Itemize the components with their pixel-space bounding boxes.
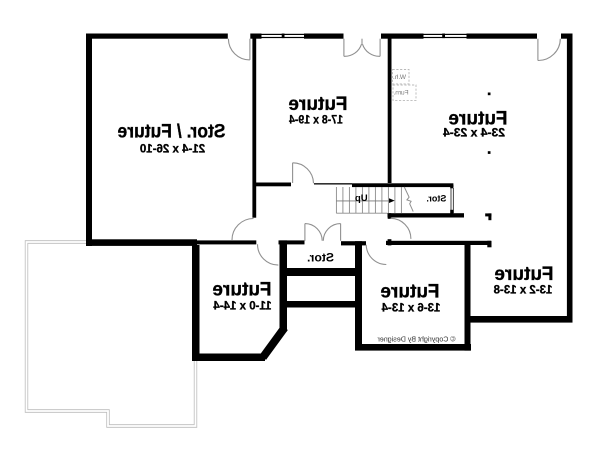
svg-text:W.h.: W.h. <box>393 74 406 81</box>
svg-text:23-4 x 23-4: 23-4 x 23-4 <box>442 127 505 139</box>
svg-text:Future: Future <box>494 264 553 285</box>
svg-text:Future: Future <box>380 282 439 303</box>
svg-text:Stor. / Future: Stor. / Future <box>118 121 226 142</box>
svg-text:Future: Future <box>288 94 347 115</box>
svg-text:17-8 x 19-4: 17-8 x 19-4 <box>288 114 343 126</box>
svg-text:13-2 x 13-8: 13-2 x 13-8 <box>493 284 552 296</box>
svg-text:© Copyright By Designer: © Copyright By Designer <box>377 336 456 344</box>
svg-text:21-4 x 26-10: 21-4 x 26-10 <box>140 144 205 156</box>
svg-text:Stor.: Stor. <box>426 194 446 204</box>
svg-text:Future: Future <box>212 280 271 301</box>
svg-text:Up: Up <box>355 193 368 204</box>
svg-text:13-6 x 13-4: 13-6 x 13-4 <box>381 302 440 314</box>
svg-text:Stor.: Stor. <box>307 252 334 264</box>
svg-text:Furn.: Furn. <box>393 90 408 97</box>
svg-text:11-0 x 14-4: 11-0 x 14-4 <box>213 300 272 312</box>
